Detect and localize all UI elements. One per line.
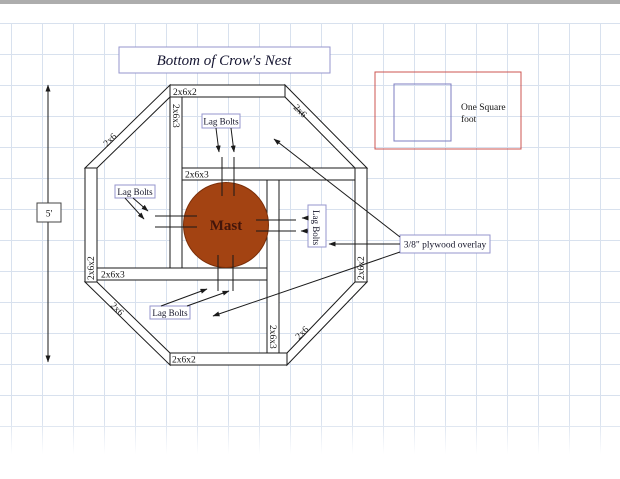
member-diag-top-right bbox=[285, 85, 367, 168]
mast: Mast bbox=[184, 183, 269, 268]
legend-label-line1: One Square bbox=[461, 103, 506, 113]
page-title: Bottom of Crow's Nest bbox=[157, 53, 293, 69]
callout-arrow bbox=[231, 128, 234, 152]
dimension-label: 5' bbox=[46, 210, 53, 220]
label-inner-vertical-top: 2x6x3 bbox=[170, 104, 180, 128]
callout-lag-bolts-top: Lag Bolts bbox=[202, 114, 240, 152]
legend-label-line2: foot bbox=[461, 114, 477, 125]
label-inner-horizontal-lower: 2x6x3 bbox=[101, 271, 125, 281]
callout-arrow bbox=[125, 198, 144, 219]
callout-lag-bolts-right-label: Lag Bolts bbox=[311, 210, 321, 246]
callout-lag-bolts-bottom-label: Lag Bolts bbox=[152, 308, 188, 318]
callout-arrow bbox=[274, 139, 400, 237]
callout-lag-bolts-right: Lag Bolts bbox=[301, 205, 326, 247]
mast-label: Mast bbox=[210, 218, 243, 234]
member-diag-bottom-left bbox=[85, 282, 170, 365]
callout-arrow bbox=[161, 289, 207, 306]
label-right-member: 2x6x2 bbox=[357, 256, 367, 280]
member-diag-bottom-right bbox=[287, 282, 367, 365]
label-inner-horizontal-upper: 2x6x3 bbox=[185, 171, 209, 181]
label-left-member: 2x6x2 bbox=[87, 256, 97, 280]
crows-nest-diagram: Bottom of Crow's Nest One Square foot 5'… bbox=[0, 0, 620, 479]
callout-arrow bbox=[216, 128, 219, 152]
scale-legend: One Square foot bbox=[375, 72, 521, 149]
label-top-member: 2x6x2 bbox=[173, 88, 197, 98]
callout-plywood-label: 3/8" plywood overlay bbox=[404, 241, 487, 251]
callout-arrow bbox=[187, 291, 229, 306]
label-inner-vertical-bottom: 2x6x3 bbox=[267, 325, 277, 349]
callout-lag-bolts-top-label: Lag Bolts bbox=[203, 117, 239, 127]
legend-square-foot-swatch bbox=[394, 84, 451, 141]
callout-lag-bolts-left: Lag Bolts bbox=[115, 185, 155, 219]
height-dimension: 5' bbox=[37, 85, 61, 362]
member-diag-top-left bbox=[85, 85, 170, 168]
label-bottom-member: 2x6x2 bbox=[172, 356, 196, 366]
title-box: Bottom of Crow's Nest bbox=[119, 47, 330, 73]
callout-lag-bolts-left-label: Lag Bolts bbox=[117, 187, 153, 197]
